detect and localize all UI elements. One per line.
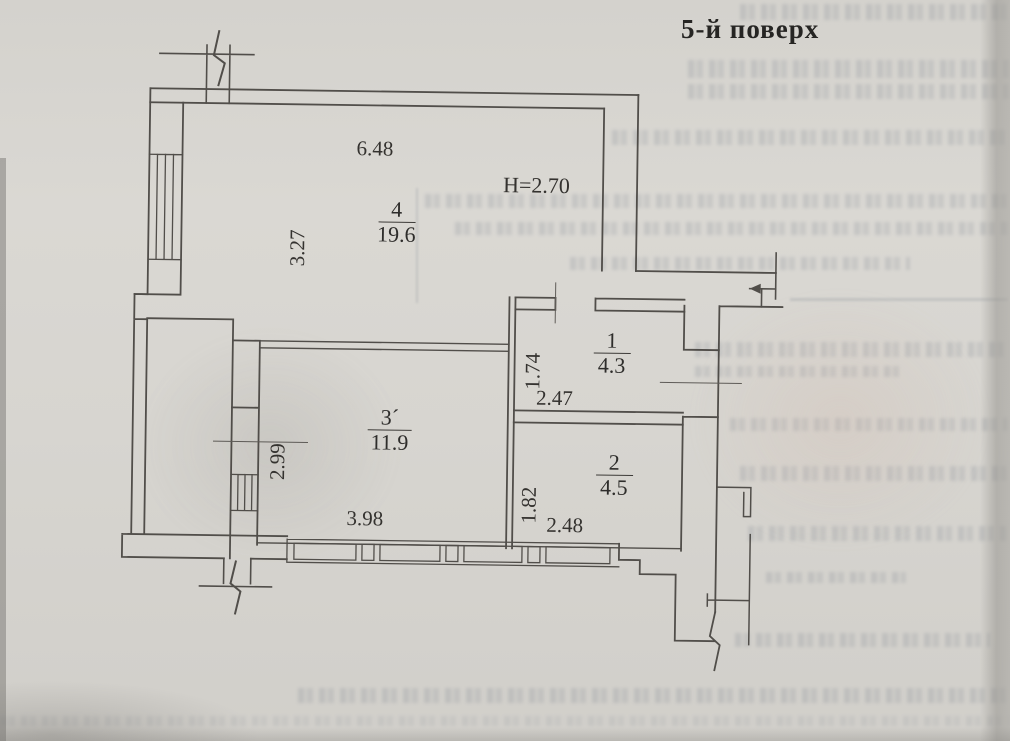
wall-exterior-bottom [122, 534, 287, 559]
page-corner-shadow [0, 680, 260, 741]
room-2-label: 2 4.5 [575, 450, 654, 500]
dim-room2-height: 1.82 [516, 487, 542, 524]
wall-break-bottom-left [199, 558, 272, 614]
wall-exterior-left [131, 88, 150, 533]
scanned-floorplan-page: 5-й поверх [0, 0, 1010, 741]
wall-corridor [715, 306, 782, 613]
wall-room4-right [602, 95, 638, 271]
floorplan-layer: 6.48 H=2.70 2.47 3.98 2.48 3.27 1.74 2.9… [0, 0, 1010, 741]
page-edge-shadow-right [980, 0, 1010, 741]
wall-room3-left-inner [230, 340, 260, 544]
dim-room2-width: 2.48 [546, 513, 583, 539]
dimension-leaders [213, 278, 742, 448]
window-left [148, 154, 182, 259]
room-1-area: 4.3 [598, 351, 626, 378]
dim-room3-width: 3.98 [346, 506, 383, 532]
wall-room1-room2 [514, 410, 683, 424]
room-3-label: 3´ 11.9 [345, 405, 434, 455]
dim-room1-height: 1.74 [520, 353, 546, 390]
wall-room4-room3 [260, 341, 509, 351]
room-4-label: 4 19.6 [354, 197, 439, 247]
dim-room4-width: 6.48 [356, 136, 393, 162]
vent-hatch [231, 474, 259, 510]
wall-break-top [159, 30, 254, 103]
window-row [287, 539, 619, 567]
wall-room4-left-inner [135, 102, 184, 295]
wall-exterior-top [150, 88, 638, 109]
room-4-area: 19.6 [377, 220, 416, 248]
dim-room4-height: 3.27 [285, 229, 311, 266]
room-1-label: 1 4.3 [574, 328, 649, 378]
ceiling-height-note: H=2.70 [503, 172, 570, 199]
wall-break-right [749, 253, 776, 307]
floorplan-drawing [0, 0, 1010, 741]
wall-rooms-right [681, 306, 719, 551]
page-edge-shadow-left [0, 158, 6, 741]
room-3-area: 11.9 [370, 427, 408, 455]
shaft-strip [144, 318, 233, 558]
room-2-area: 4.5 [600, 473, 628, 500]
wall-step-bottom-right [618, 544, 716, 641]
dim-room3-height: 2.99 [265, 443, 291, 480]
wall-room1-top [515, 297, 684, 311]
wall-balcony-top [636, 271, 776, 273]
